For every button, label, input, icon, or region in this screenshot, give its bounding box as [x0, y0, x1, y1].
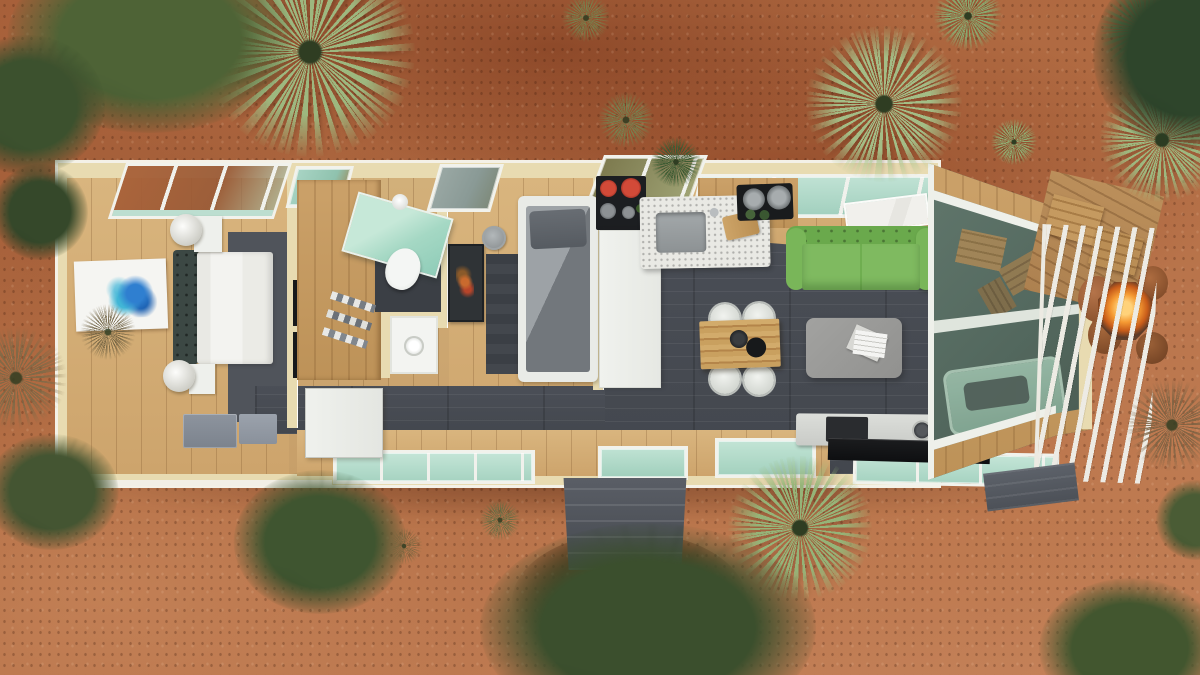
- plant-grass: [560, 0, 612, 44]
- plant-palm: [651, 137, 701, 187]
- shrub-foliage: [1039, 578, 1200, 675]
- plant-grass: [384, 526, 424, 566]
- plant-grass: [78, 302, 138, 362]
- grass-foliage: [78, 302, 138, 362]
- plant-shrub: [0, 164, 88, 260]
- desert-tiny-house-render: [0, 0, 1200, 675]
- grass-foliage: [384, 526, 424, 566]
- yucca-foliage: [1100, 78, 1200, 202]
- grass-foliage: [560, 0, 612, 44]
- grass-foliage: [478, 498, 522, 542]
- plant-agave: [1100, 0, 1192, 76]
- shrub-foliage: [0, 35, 105, 175]
- yucca-foliage: [728, 456, 872, 600]
- shrub-foliage: [234, 470, 407, 614]
- grass-foliage: [1122, 375, 1200, 475]
- plant-shrub: [8, 0, 293, 133]
- plant-shrub: [0, 35, 105, 175]
- tree-foliage: [1093, 0, 1200, 150]
- palm-foliage: [651, 137, 701, 187]
- plant-shrub: [1156, 480, 1200, 560]
- plant-yucca: [806, 26, 962, 182]
- shrub-foliage: [480, 523, 816, 675]
- plant-yucca: [991, 119, 1037, 165]
- plant-yucca: [1100, 78, 1200, 202]
- yucca-foliage: [205, 0, 415, 157]
- plants-layer: [0, 0, 1200, 675]
- shrub-foliage: [1156, 480, 1200, 560]
- plant-grass: [1122, 375, 1200, 475]
- plant-yucca: [205, 0, 415, 157]
- grass-foliage: [596, 90, 656, 150]
- yucca-foliage: [934, 0, 1002, 50]
- grass-foliage: [0, 323, 71, 433]
- plant-yucca: [934, 0, 1002, 50]
- plant-yucca: [728, 456, 872, 600]
- shrub-foliage: [0, 434, 119, 550]
- plant-tree: [1093, 0, 1200, 150]
- shrub-foliage: [8, 0, 293, 133]
- yucca-foliage: [806, 26, 962, 182]
- plant-grass: [478, 498, 522, 542]
- plant-shrub: [234, 470, 407, 614]
- yucca-foliage: [991, 119, 1037, 165]
- plant-shrub: [0, 434, 119, 550]
- plant-shrub: [480, 523, 816, 675]
- plant-grass: [596, 90, 656, 150]
- shrub-foliage: [0, 164, 88, 260]
- agave-foliage: [1100, 0, 1192, 76]
- plant-grass: [0, 323, 71, 433]
- plant-shrub: [1039, 578, 1200, 675]
